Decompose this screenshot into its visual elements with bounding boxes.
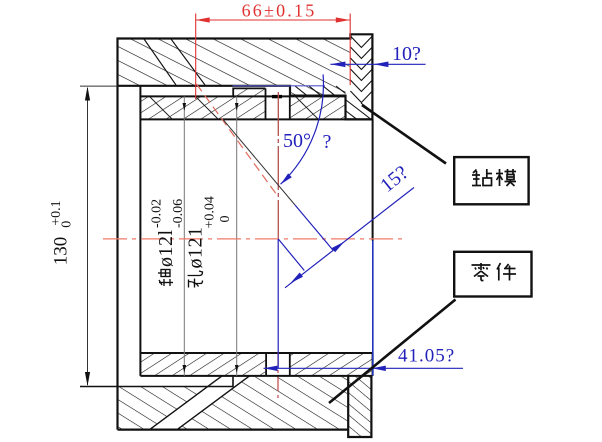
svg-text:66±0.15: 66±0.15 <box>242 1 317 21</box>
svg-text:ø121: ø121 <box>185 227 207 269</box>
svg-text:10?: 10? <box>392 43 421 65</box>
svg-text:-0.06: -0.06 <box>171 199 186 228</box>
svg-text:41.05?: 41.05? <box>398 346 455 367</box>
svg-text:0: 0 <box>60 221 75 228</box>
svg-text:ø12l: ø12l <box>155 229 177 267</box>
svg-text:0: 0 <box>218 216 233 223</box>
svg-text:?: ? <box>323 131 332 153</box>
svg-text:+0.04: +0.04 <box>203 196 218 228</box>
svg-text:-0.02: -0.02 <box>150 199 165 228</box>
svg-text:50°: 50° <box>283 130 311 152</box>
svg-text:130: 130 <box>51 237 72 266</box>
